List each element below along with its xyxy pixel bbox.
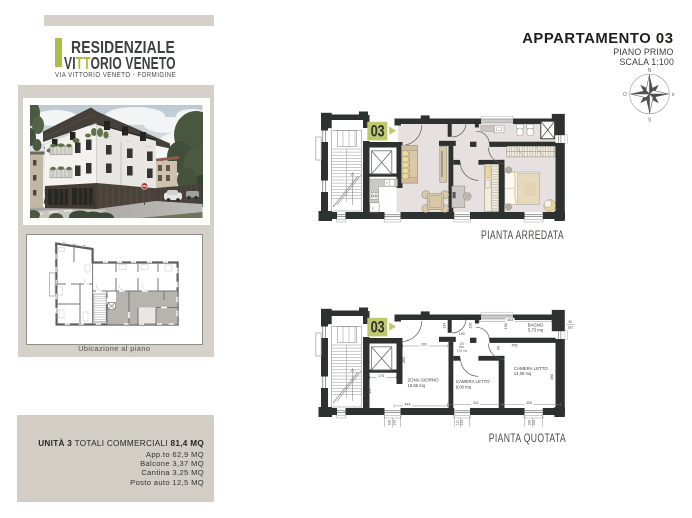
svg-text:162: 162 <box>567 326 573 330</box>
svg-text:S: S <box>648 118 652 124</box>
svg-text:E: E <box>672 92 675 97</box>
svg-text:160: 160 <box>528 420 532 426</box>
svg-text:14,00 mq: 14,00 mq <box>514 371 532 376</box>
svg-text:143: 143 <box>460 420 464 426</box>
svg-text:398: 398 <box>550 374 554 380</box>
svg-text:281: 281 <box>421 343 427 347</box>
svg-text:143: 143 <box>392 420 396 426</box>
svg-text:111: 111 <box>456 420 460 425</box>
svg-text:305: 305 <box>526 401 532 405</box>
svg-text:180: 180 <box>388 420 392 426</box>
svg-text:444: 444 <box>405 403 411 407</box>
svg-text:261: 261 <box>402 357 406 363</box>
svg-text:150: 150 <box>459 332 465 336</box>
svg-text:162: 162 <box>532 420 536 426</box>
svg-text:99: 99 <box>448 345 452 349</box>
svg-text:9,00 mq: 9,00 mq <box>456 384 472 389</box>
svg-text:311: 311 <box>473 401 479 405</box>
svg-text:156: 156 <box>504 323 508 329</box>
svg-text:90: 90 <box>568 320 572 324</box>
svg-text:455: 455 <box>512 343 518 347</box>
svg-text:136: 136 <box>469 323 473 329</box>
svg-text:99: 99 <box>496 346 500 350</box>
svg-text:134: 134 <box>443 323 447 329</box>
svg-text:O: O <box>623 92 627 98</box>
svg-text:463: 463 <box>507 318 513 322</box>
svg-text:18,56 mq: 18,56 mq <box>408 383 426 388</box>
svg-text:197: 197 <box>368 388 372 394</box>
svg-text:N: N <box>648 68 652 74</box>
svg-text:3,01 mq: 3,01 mq <box>457 348 468 352</box>
svg-text:5,73 mq: 5,73 mq <box>528 327 544 332</box>
svg-text:175: 175 <box>378 374 384 378</box>
